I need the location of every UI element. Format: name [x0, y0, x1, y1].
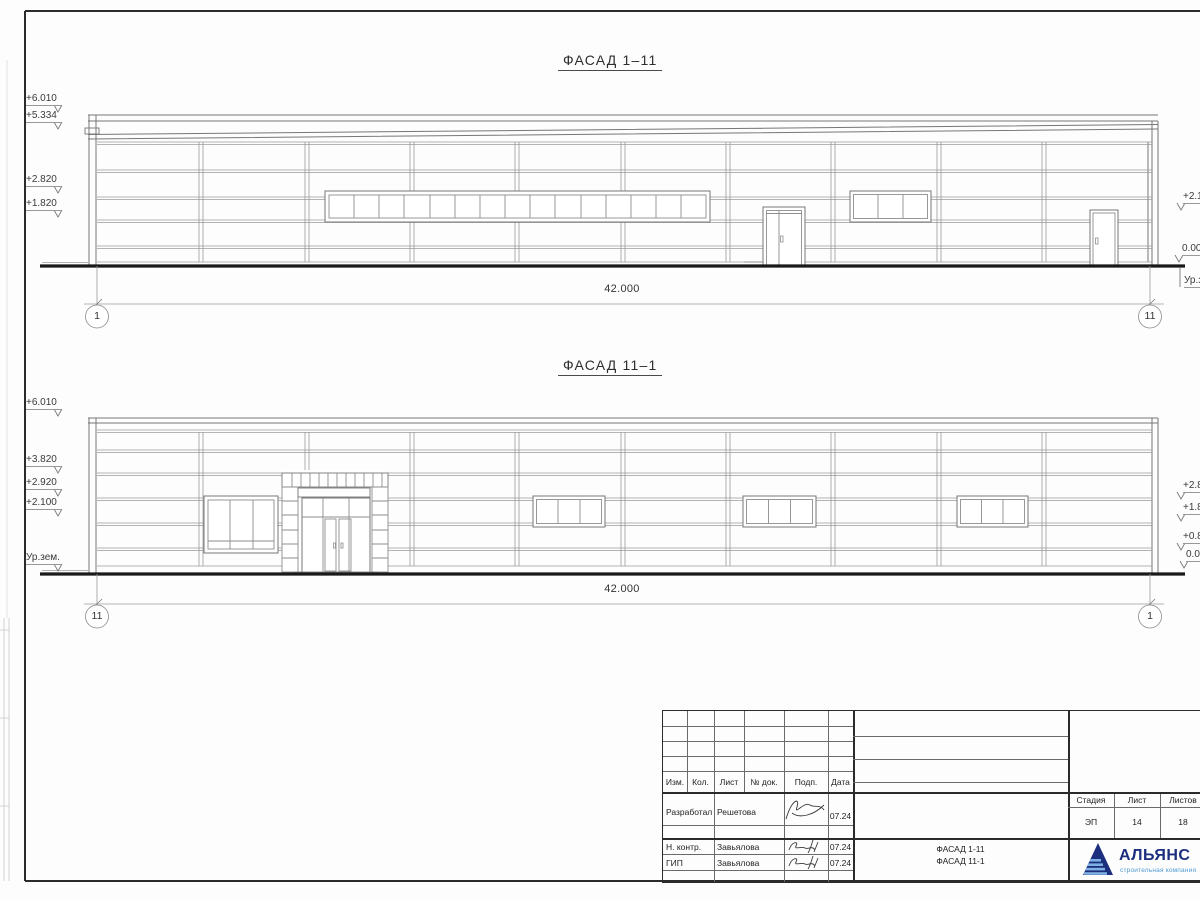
date-gip: 07.24: [828, 858, 853, 868]
facade-2-drawing: [40, 409, 1188, 628]
signature-checker: [786, 839, 826, 854]
role-checker: Н. контр.: [666, 842, 701, 852]
role-developer: Разработал: [666, 807, 712, 817]
window-3pane: [850, 191, 931, 222]
sheet-left-margin-cells: [0, 60, 9, 881]
facade-2-overall-dimension: 42.000: [590, 583, 654, 595]
company-name: АЛЬЯНС: [1119, 847, 1190, 865]
level-label: +2.820: [26, 174, 62, 187]
level-label: +1.820: [26, 198, 62, 211]
level-label: +5.334: [26, 110, 62, 123]
sheets-value: 18: [1160, 817, 1200, 827]
rev-header-podp: Подп.: [784, 777, 828, 787]
door-right: [1090, 210, 1118, 266]
rev-header-list: Лист: [714, 777, 744, 787]
window-3pane-a: [533, 496, 605, 527]
level-label: +6.010: [26, 93, 62, 106]
sign-band: [298, 488, 370, 497]
doc-title-line2: ФАСАД 11-1: [853, 856, 1068, 866]
drawing-sheet: ФАСАД 1–11 ФАСАД 11–1 42.000 42.000 1 11…: [0, 0, 1200, 900]
door-middle: [744, 207, 805, 266]
name-checker: Завьялова: [717, 842, 759, 852]
level-label: +6.010: [26, 397, 62, 410]
axis-bubble-11: 11: [86, 605, 109, 628]
entrance-portal: [282, 470, 388, 573]
role-gip: ГИП: [666, 858, 683, 868]
ribbon-window: [325, 191, 710, 222]
title-block: Изм. Кол. Лист № док. Подп. Дата Разрабо…: [662, 710, 1200, 883]
sheet-value: 14: [1114, 817, 1160, 827]
ground-level-label: Ур.з: [1184, 275, 1200, 288]
rev-header-data: Дата: [828, 777, 853, 787]
rev-header-izm: Изм.: [663, 777, 687, 787]
facade-1-overall-dimension: 42.000: [590, 283, 654, 295]
facade-2-title: ФАСАД 11–1: [558, 357, 662, 376]
doc-title-line1: ФАСАД 1-11: [853, 844, 1068, 854]
level-label: +2.10: [1183, 191, 1200, 204]
sheets-header: Листов: [1160, 795, 1200, 805]
level-label: +2.100: [26, 497, 62, 510]
level-label: +3.820: [26, 454, 62, 467]
axis-bubble-11: 11: [1139, 305, 1162, 328]
level-label: 0.00: [1182, 243, 1200, 256]
date-checker: 07.24: [828, 842, 853, 852]
window-3pane-c: [957, 496, 1028, 527]
signature-developer: [782, 795, 826, 823]
axis-bubble-1: 1: [86, 305, 109, 328]
name-gip: Завьялова: [717, 858, 759, 868]
ground-level-label: Ур.зем.: [26, 552, 62, 565]
window-large: [204, 496, 278, 553]
rev-header-doc: № док.: [744, 777, 784, 787]
stage-value: ЭП: [1068, 817, 1114, 827]
dimension-line: [84, 266, 1164, 328]
level-label: +1.82: [1183, 502, 1200, 515]
sheet-header: Лист: [1114, 795, 1160, 805]
company-tagline: строительная компания: [1120, 867, 1196, 874]
level-label: +2.8: [1183, 480, 1200, 493]
window-3pane-b: [743, 496, 816, 527]
company-logo-icon: [1083, 843, 1113, 875]
signature-gip: [786, 855, 826, 870]
date-developer: 07.24: [828, 811, 853, 821]
stage-header: Стадия: [1068, 795, 1114, 805]
level-label: 0.0: [1186, 549, 1200, 562]
facade-1-title: ФАСАД 1–11: [558, 52, 662, 71]
name-developer: Решетова: [717, 807, 756, 817]
axis-bubble-1: 1: [1139, 605, 1162, 628]
level-label: +0.8: [1183, 531, 1200, 544]
level-label: +2.920: [26, 477, 62, 490]
rev-header-kol: Кол.: [687, 777, 714, 787]
